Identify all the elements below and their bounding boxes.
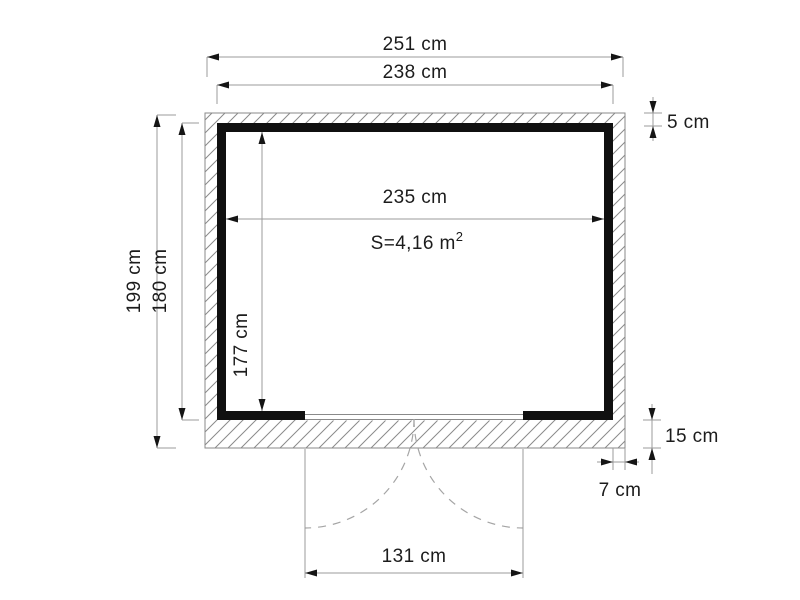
dim-bottom-overhang: 15 cm [643, 404, 719, 474]
interior-floor [226, 132, 604, 411]
dim-door-width: 131 cm [305, 449, 523, 578]
dim-top-overhang-label: 5 cm [667, 112, 710, 133]
dim-side-overhang: 7 cm [597, 448, 641, 501]
dim-arrow-bottom [179, 408, 186, 420]
floor-plan-page: 251 cm 238 cm 235 cm S=4,16 m2 199 cm 18… [0, 0, 800, 600]
walls [217, 123, 613, 421]
dim-inner-width-label: 235 cm [383, 187, 448, 208]
dim-arrow-up [649, 448, 656, 460]
dim-arrow-top [154, 115, 161, 127]
dim-door-width-label: 131 cm [382, 546, 447, 567]
dim-frame-width-label: 238 cm [383, 62, 448, 83]
dim-arrow-right [611, 54, 623, 61]
dim-arrow-down [650, 101, 657, 113]
dim-arrow-right [601, 82, 613, 89]
dim-outer-depth-label: 199 cm [124, 249, 145, 314]
dim-bottom-overhang-label: 15 cm [665, 426, 719, 447]
floor-plan-drawing: 251 cm 238 cm 235 cm S=4,16 m2 199 cm 18… [0, 0, 800, 600]
area-label: S=4,16 m2 [371, 229, 464, 254]
dim-frame-width: 238 cm [217, 62, 613, 104]
dim-top-overhang: 5 cm [644, 97, 710, 141]
dim-arrow-left [207, 54, 219, 61]
dim-side-overhang-label: 7 cm [599, 480, 642, 501]
dim-inner-depth-label: 177 cm [231, 313, 252, 378]
area-label-sup: 2 [456, 229, 464, 244]
dim-outer-width-label: 251 cm [383, 34, 448, 55]
dim-arrow-left [625, 459, 637, 466]
area-label-text: S=4,16 m [371, 233, 456, 254]
dim-arrow-top [179, 123, 186, 135]
dim-frame-depth-label: 180 cm [150, 249, 171, 314]
dim-arrow-left [217, 82, 229, 89]
dim-arrow-right [511, 570, 523, 577]
dim-arrow-down [649, 408, 656, 420]
dim-arrow-left [305, 570, 317, 577]
dim-arrow-right [601, 459, 613, 466]
dim-arrow-bottom [154, 436, 161, 448]
dim-arrow-up [650, 126, 657, 138]
